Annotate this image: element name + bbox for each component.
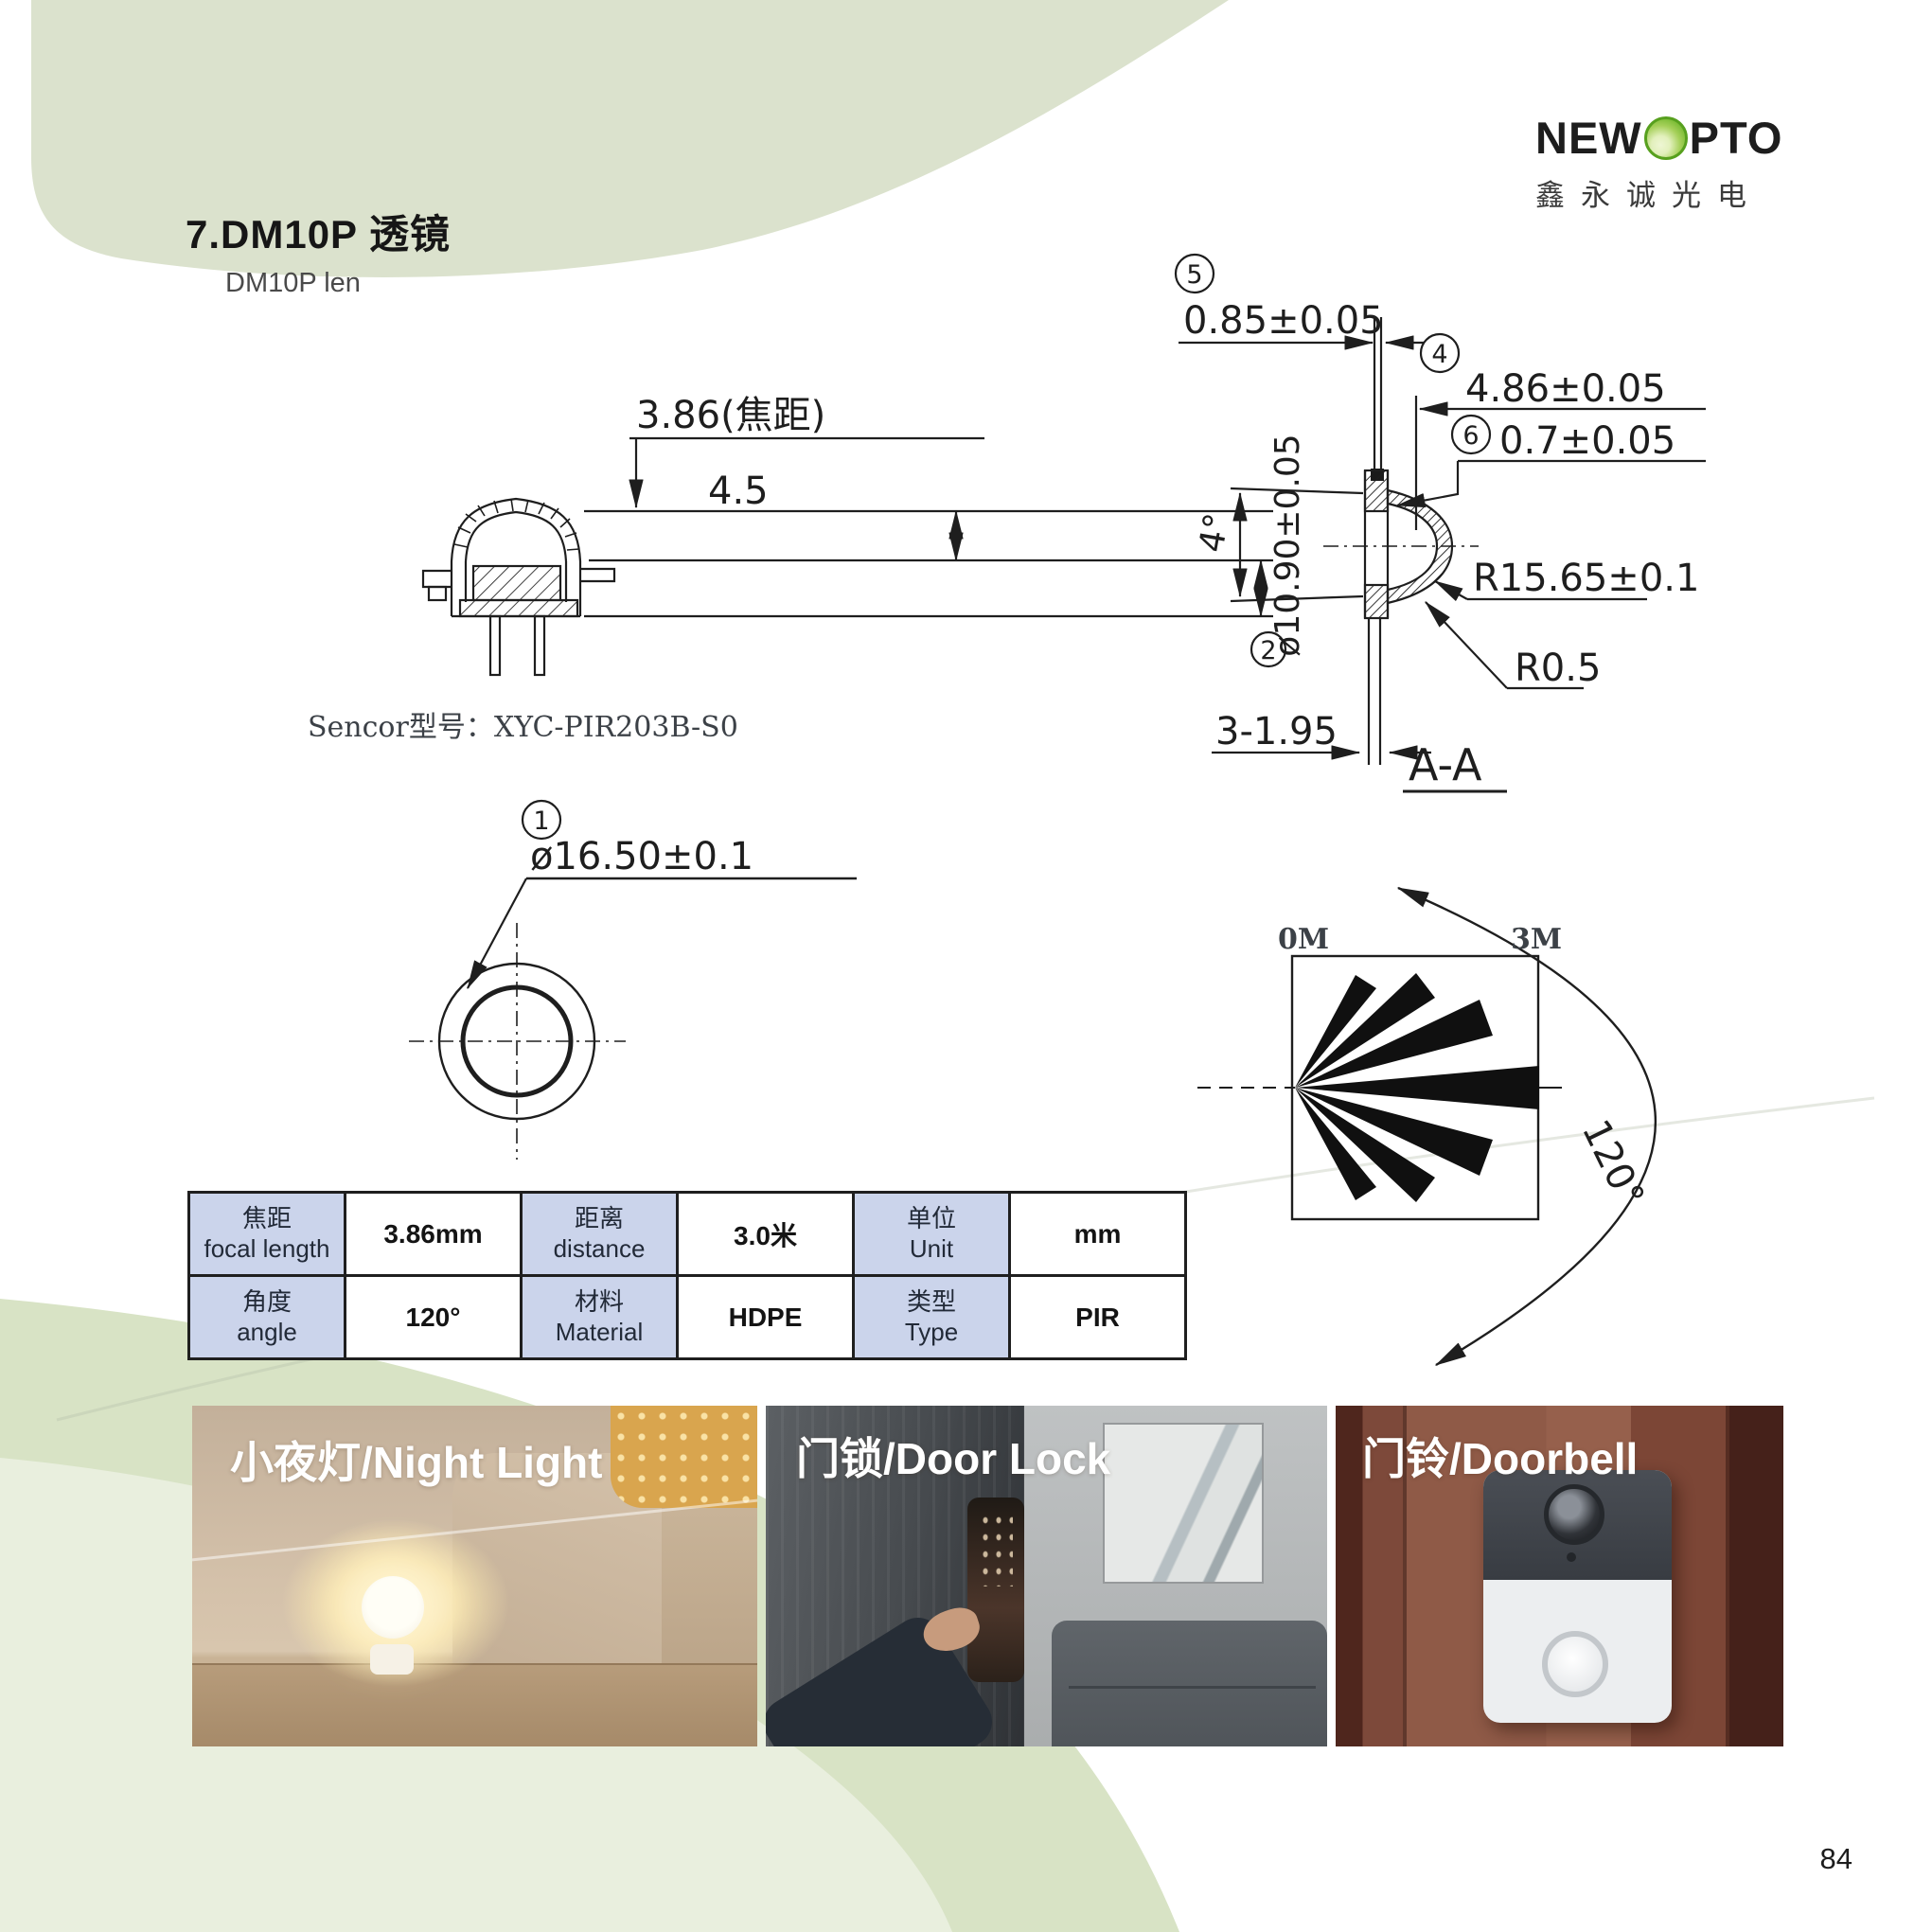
sensor-pin-left bbox=[490, 616, 500, 675]
balloon-6-number: 6 bbox=[1462, 421, 1479, 451]
flange-tab-right bbox=[580, 569, 614, 581]
dim-lens-height: 4.5 bbox=[708, 470, 769, 513]
table-row: 焦距focal length 3.86mm 距离distance 3.0米 单位… bbox=[189, 1193, 1186, 1276]
table-row: 角度angle 120° 材料Material HDPE 类型Type PIR bbox=[189, 1276, 1186, 1359]
door-lock-sofa bbox=[1052, 1621, 1327, 1746]
drawing-side-section bbox=[423, 438, 1273, 675]
flange-section-bottom bbox=[1365, 585, 1388, 618]
logo-text-right: PTO bbox=[1690, 112, 1783, 164]
sensor-model-label: Sencor型号：XYC-PIR203B-S0 bbox=[308, 711, 738, 744]
logo-chinese-name: 鑫永诚光电 bbox=[1535, 171, 1791, 214]
dim-pins: 3-1.95 bbox=[1215, 710, 1338, 753]
balloon-1 bbox=[523, 801, 560, 839]
door-lock-sofa-seam bbox=[1069, 1686, 1316, 1689]
spec-unit-value: mm bbox=[1010, 1193, 1186, 1276]
dim-486: 4.86±0.05 bbox=[1465, 367, 1666, 411]
doorbell-button bbox=[1542, 1631, 1608, 1697]
lens-dome-inner bbox=[466, 512, 566, 561]
spec-material-header: 材料Material bbox=[522, 1276, 678, 1359]
page-title: 7.DM10P 透镜 bbox=[186, 203, 451, 260]
logo-wordmark: NEWPTO bbox=[1535, 112, 1791, 164]
page-subtitle: DM10P len bbox=[225, 268, 451, 299]
beam-pattern-box bbox=[1292, 956, 1538, 1219]
sensor-base bbox=[460, 600, 577, 616]
spec-distance-header: 距离distance bbox=[522, 1193, 678, 1276]
dim-outer-diameter: ø16.50±0.1 bbox=[530, 835, 753, 878]
photo-caption-night-light: 小夜灯/Night Light bbox=[230, 1428, 602, 1491]
lens-section bbox=[1388, 490, 1452, 603]
balloon-5-number: 5 bbox=[1186, 260, 1202, 290]
drawing-top-view bbox=[409, 801, 857, 1160]
spec-material-value: HDPE bbox=[678, 1276, 854, 1359]
spec-angle-header: 角度angle bbox=[189, 1276, 346, 1359]
beam-label-0m: 0M bbox=[1278, 923, 1329, 956]
drawing-beam-pattern bbox=[1197, 888, 1656, 1365]
sensor-pin-right bbox=[535, 616, 544, 675]
spec-focal-length-header: 焦距focal length bbox=[189, 1193, 346, 1276]
doorbell-indicator-dot bbox=[1567, 1552, 1576, 1562]
brand-logo: NEWPTO 鑫永诚光电 bbox=[1535, 112, 1791, 214]
flange-section-top bbox=[1365, 470, 1388, 511]
beam-angle-label: 120° bbox=[1573, 1113, 1653, 1214]
night-light-plug bbox=[370, 1644, 414, 1675]
balloon-4-number: 4 bbox=[1431, 340, 1447, 369]
lens-dome-hatching bbox=[454, 499, 579, 550]
balloon-1-number: 1 bbox=[533, 806, 549, 836]
photo-caption-doorbell: 门铃/Doorbell bbox=[1362, 1425, 1638, 1487]
spec-unit-header: 单位Unit bbox=[854, 1193, 1010, 1276]
photo-night-light: 小夜灯/Night Light bbox=[192, 1406, 757, 1746]
lens-outline-outer bbox=[439, 964, 594, 1119]
beam-wedges bbox=[1295, 973, 1539, 1202]
section-view-label: A-A bbox=[1409, 739, 1482, 790]
dim-focal-length: 3.86(焦距) bbox=[636, 394, 825, 437]
lens-dome-outer bbox=[452, 499, 580, 561]
beam-label-3m: 3M bbox=[1511, 923, 1562, 956]
logo-text-left: NEW bbox=[1535, 112, 1642, 164]
sensor-crystal bbox=[473, 566, 560, 600]
spec-type-value: PIR bbox=[1010, 1276, 1186, 1359]
spec-distance-value: 3.0米 bbox=[678, 1193, 854, 1276]
dim-07: 0.7±0.05 bbox=[1499, 419, 1675, 463]
night-light-cushion bbox=[611, 1406, 757, 1508]
dim-085: 0.85±0.05 bbox=[1183, 299, 1384, 343]
drawing-section-aa bbox=[1176, 255, 1706, 791]
photo-doorbell: 门铃/Doorbell bbox=[1336, 1406, 1783, 1746]
spec-table: 焦距focal length 3.86mm 距离distance 3.0米 单位… bbox=[187, 1191, 1187, 1360]
angle-arc-120 bbox=[1398, 888, 1656, 1365]
lens-outline-inner bbox=[463, 987, 571, 1095]
spec-type-header: 类型Type bbox=[854, 1276, 1010, 1359]
photo-caption-door-lock: 门锁/Door Lock bbox=[796, 1425, 1110, 1487]
dim-4deg: 4° bbox=[1192, 510, 1236, 555]
spec-angle-value: 120° bbox=[346, 1276, 522, 1359]
dim-radius-edge: R0.5 bbox=[1515, 647, 1601, 690]
dim-diameter-1090: ø10.90±0.05 bbox=[1268, 434, 1307, 656]
datasheet-page: 7.DM10P 透镜 DM10P len NEWPTO 鑫永诚光电 bbox=[0, 0, 1932, 1932]
door-lock-keypad bbox=[979, 1512, 1013, 1586]
spec-focal-length-value: 3.86mm bbox=[346, 1193, 522, 1276]
dim-radius-outer: R15.65±0.1 bbox=[1473, 557, 1699, 600]
flange-tab-left bbox=[423, 571, 452, 587]
photo-door-lock: 门锁/Door Lock bbox=[766, 1406, 1327, 1746]
door-lock-artwork bbox=[1103, 1423, 1264, 1584]
page-number: 84 bbox=[1820, 1842, 1852, 1876]
logo-o-icon bbox=[1644, 116, 1688, 160]
balloon-2-number: 2 bbox=[1260, 636, 1276, 665]
doorbell-camera-lens-icon bbox=[1544, 1484, 1604, 1545]
night-light-device bbox=[362, 1576, 424, 1639]
